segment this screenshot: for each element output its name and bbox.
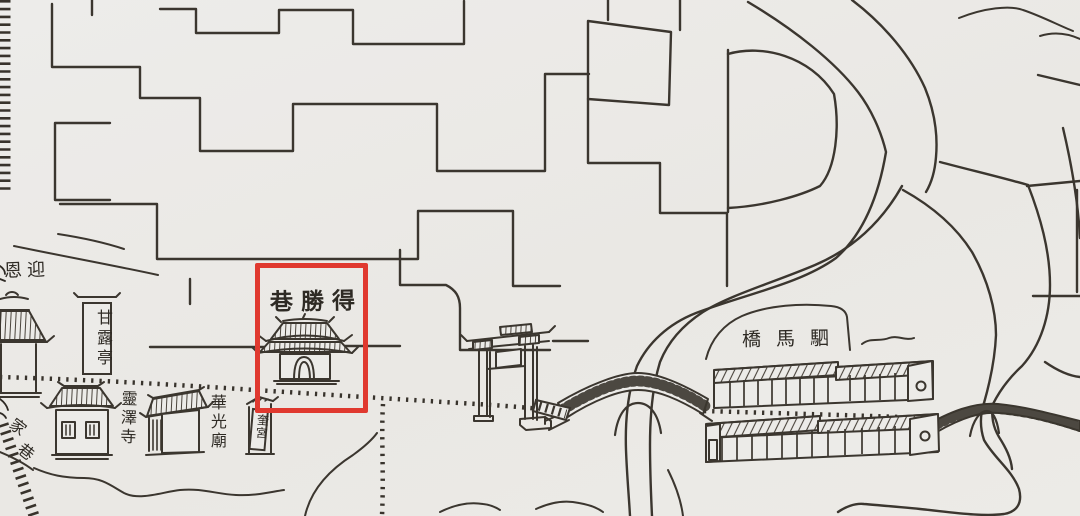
yingen-pavilion [0,292,54,397]
historical-map-canvas: 恩迎 甘露亭 巷勝得 靈澤寺 華光廟 奎宮 橋馬駟 家 巷 [0,0,1080,516]
highlight-rectangle [255,263,368,413]
yingen-label: 恩迎 [4,259,51,281]
huaguang-temple-label: 華光廟 [207,394,225,451]
sima-bridge-label: 橋馬駟 [742,328,844,351]
huaguang-temple-building [140,387,213,455]
lingze-temple-building [41,382,121,459]
city-wall-crenellations [52,0,1080,350]
ganlu-pavilion-label: 甘露亭 [83,307,111,371]
lingze-temple-label: 靈澤寺 [116,390,136,448]
arched-bridge-east [920,404,1080,438]
map-line-art [0,0,1080,516]
shop-row-north [714,361,933,408]
shop-row-south [706,414,939,462]
